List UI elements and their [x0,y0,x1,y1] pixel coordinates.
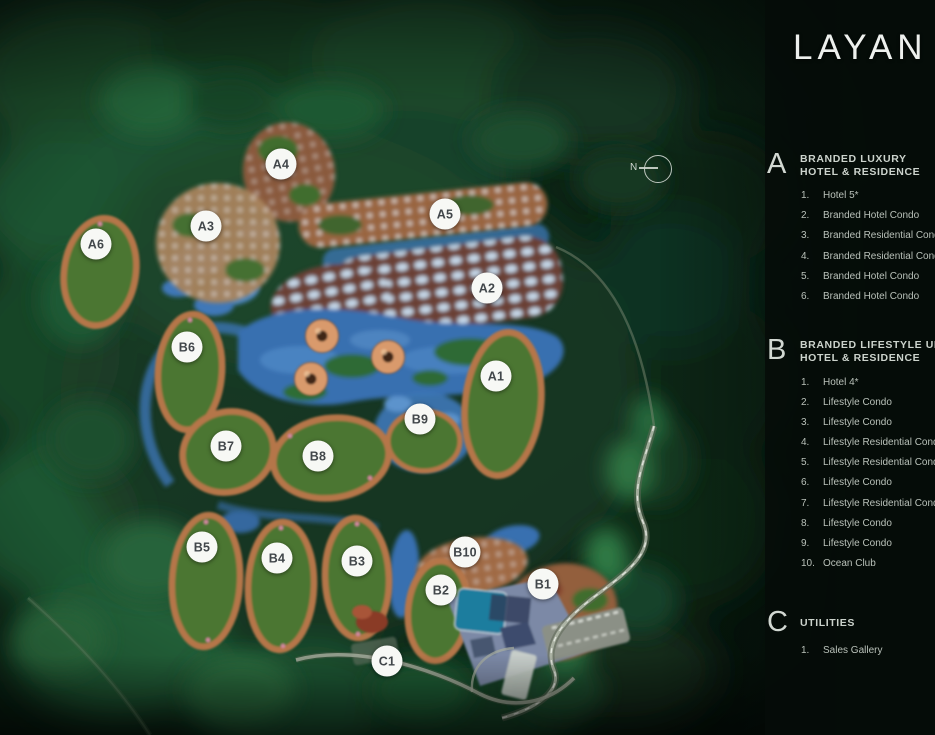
map-marker-a6: A6 [81,229,112,260]
map-marker-b7: B7 [211,431,242,462]
north-compass-icon [644,155,672,183]
map-marker-b9: B9 [405,404,436,435]
map-marker-b4: B4 [262,543,293,574]
map-marker-a3: A3 [191,211,222,242]
masterplan-page: LAYAN V N A4 A3 A6 A5 A2 B6 A1 B9 B7 B8 … [0,0,935,735]
map-marker-b1: B1 [528,569,559,600]
map-marker-a4: A4 [266,149,297,180]
map-marker-b5: B5 [187,532,218,563]
map-marker-b3: B3 [342,546,373,577]
map-marker-a5: A5 [430,199,461,230]
map-marker-b2: B2 [426,575,457,606]
map-marker-b8: B8 [303,441,334,472]
map-marker-b6: B6 [172,332,203,363]
map-marker-a2: A2 [472,273,503,304]
north-compass-needle [639,167,658,169]
north-label: N [630,162,637,173]
brand-title: LAYAN V [793,28,935,68]
map-marker-b10: B10 [450,537,481,568]
map-marker-c1: C1 [372,646,403,677]
resort-masterplan-aerial-map [0,0,935,735]
map-marker-a1: A1 [481,361,512,392]
